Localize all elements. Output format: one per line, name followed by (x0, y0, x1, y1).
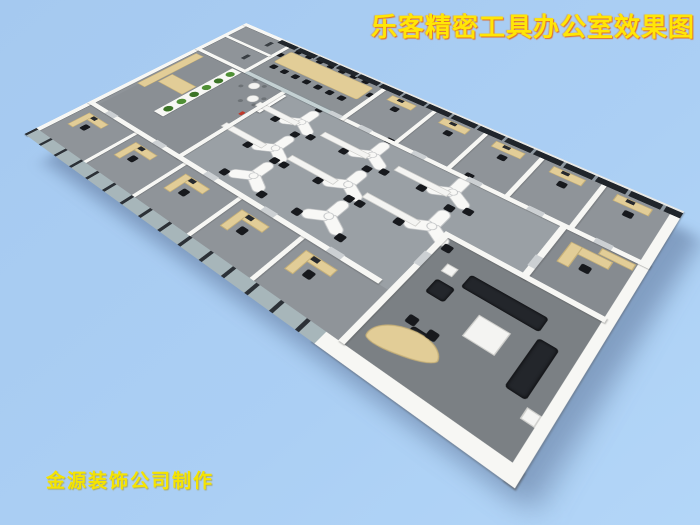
credit-text: 金源装饰公司制作 (46, 466, 214, 493)
office-chair (79, 124, 91, 131)
office-chair (496, 154, 508, 162)
office-chair (389, 106, 400, 112)
office-chair (442, 130, 454, 137)
office-chair (301, 269, 316, 281)
office-chair (621, 210, 634, 220)
title-text: 乐客精密工具办公室效果图 (371, 7, 695, 44)
doorway-dark (241, 54, 251, 59)
render-canvas: 乐客精密工具办公室效果图 金源装饰公司制作 (0, 0, 700, 525)
outer-wall-top (242, 23, 284, 42)
office-chair (235, 226, 249, 236)
office-chair (126, 155, 139, 163)
office-chair (177, 188, 190, 197)
small-room-divider (225, 36, 271, 57)
doorway-dark (264, 42, 274, 47)
office-chair (556, 180, 569, 189)
